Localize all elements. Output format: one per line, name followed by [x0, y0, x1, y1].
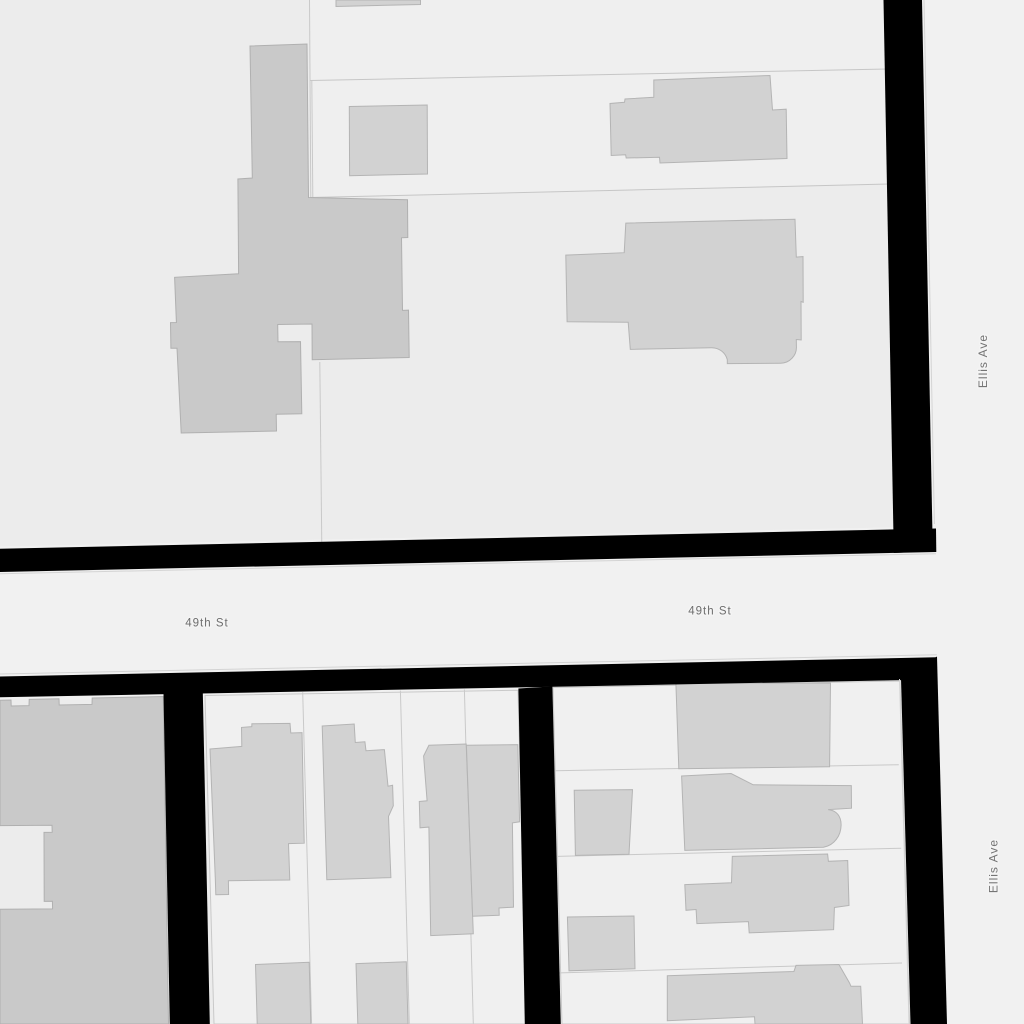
svg-text:Ellis Ave: Ellis Ave	[976, 334, 990, 388]
svg-text:49th St: 49th St	[688, 605, 731, 617]
svg-text:49th St: 49th St	[185, 618, 228, 630]
svg-text:Ellis Ave: Ellis Ave	[987, 839, 1001, 893]
